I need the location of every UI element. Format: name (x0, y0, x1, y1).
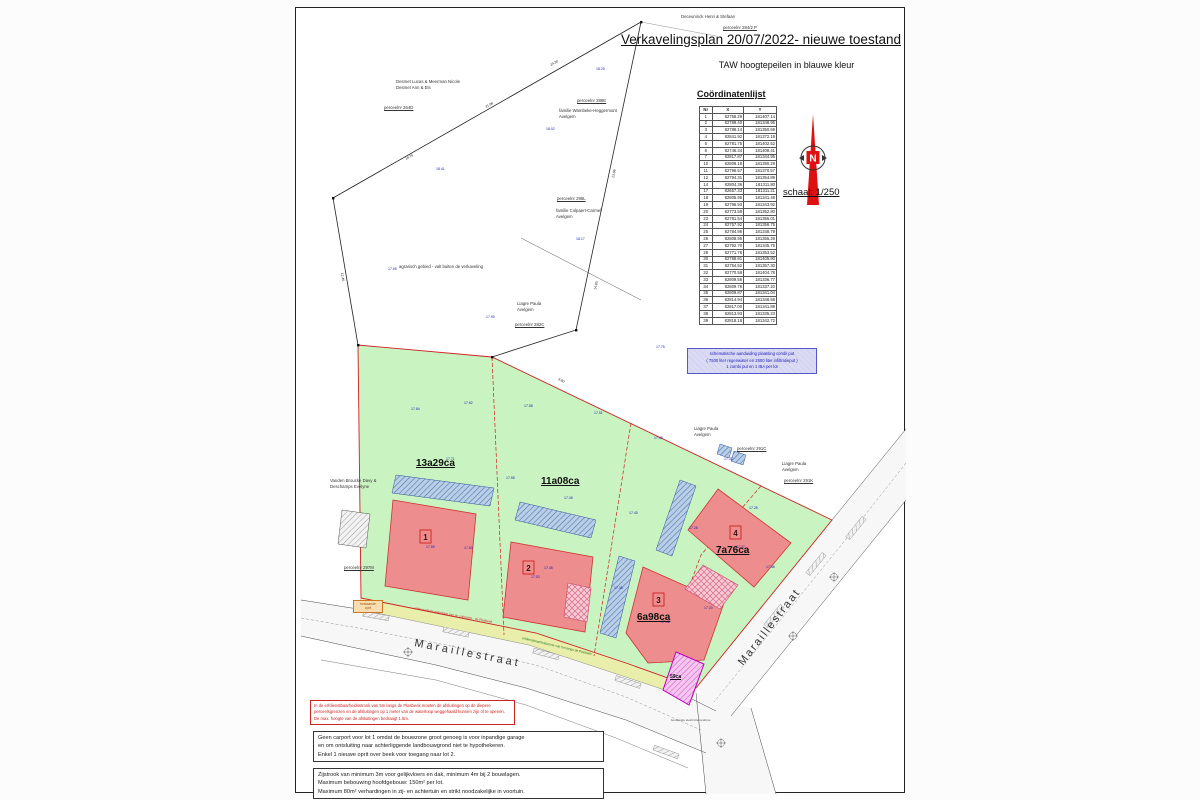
area-label-lot2: 11a08ca (541, 476, 579, 487)
coord-cell: 82781.75 (712, 140, 744, 147)
area-label-lot3: 6a98ca (637, 612, 670, 623)
coord-row: 1882805.95181341.48 (700, 195, 777, 202)
coord-row: 3682814.94181346.58 (700, 297, 777, 304)
coord-cell: 2 (700, 120, 713, 127)
coord-cell: 38 (700, 310, 713, 317)
existing-building (338, 510, 370, 548)
coord-cell: 82758.29 (712, 113, 744, 120)
owner-vandenbroucke-line2: Deschamps Evelyne (330, 484, 369, 489)
coord-row: 282789.40181348.95 (700, 120, 777, 127)
bestaande-oprit-box: bestaande oprit (353, 600, 383, 613)
scale-label: schaal: 1/250 (783, 187, 840, 198)
area-label-lot1: 13a29ca (416, 458, 455, 469)
coord-cell: 82784.96 (712, 229, 744, 236)
coord-cell: 181345.75 (744, 242, 777, 249)
taw-height: 17.90 (486, 315, 495, 319)
coord-row: 3882813.93181335.23 (700, 310, 777, 317)
lot-number-1: 1 (423, 533, 428, 542)
zijstrook-line-1: Zijstrook van minimum 3m voor gelijkvloe… (318, 771, 599, 779)
coord-cell: 181352.80 (744, 208, 777, 215)
dimension-label: 14.83 (593, 281, 599, 290)
coord-cell: 10 (700, 161, 713, 168)
coord-row: 3582809.87181341.04 (700, 290, 777, 297)
coord-cell: 181372.19 (744, 134, 777, 141)
coord-row: 2382781.54181355.01 (700, 215, 777, 222)
parcel-291k: perceelnr 291K (784, 478, 813, 484)
coord-cell: 6 (700, 147, 713, 154)
coord-row: 382788.14181350.59 (700, 127, 777, 134)
coord-cell: 181348.95 (744, 120, 777, 127)
owner-colpaert-line2: Avelgem (556, 214, 573, 219)
coord-row: 2682808.95181355.26 (700, 236, 777, 243)
coord-cell: 82770.58 (712, 270, 744, 277)
owner-wambeke-line1: familie Wambeke-Heggermont (559, 108, 617, 113)
taw-height: 17.62 (464, 401, 473, 405)
carport-line-1: Geen carport voor lot 1 omdat de bouwzon… (318, 734, 599, 742)
coord-cell: 82804.36 (712, 181, 744, 188)
coord-row: 3482809.76181337.20 (700, 283, 777, 290)
coord-row: 482841.92181372.19 (700, 134, 777, 141)
coord-row: 2582784.96181348.79 (700, 229, 777, 236)
coord-cell: 181355.26 (744, 236, 777, 243)
coord-cell: 25 (700, 229, 713, 236)
plasbeek-line-3: De max. hoogte van de afsluitingen bedra… (314, 716, 511, 722)
parcel-282c: perceelnr 282C (515, 322, 544, 328)
coordinates-table: NrXY182758.29181407.14282789.40181348.95… (699, 106, 777, 325)
owner-colpaert: familie Colpaert-Carmel Avelgem (556, 208, 601, 219)
coord-cell: 34 (700, 283, 713, 290)
coord-cell: 181341.88 (744, 304, 777, 311)
zijstrook-line-3: Maximum 80m² verhardingen in zij- en ach… (318, 788, 599, 796)
coord-cell: 181353.52 (744, 249, 777, 256)
carport-line-2: en om ontsluiting naar achterliggende la… (318, 742, 599, 750)
coord-cell: 82841.92 (712, 134, 744, 141)
coord-cell: 32 (700, 270, 713, 277)
coord-header-row: NrXY (700, 107, 777, 114)
coord-row: 3182754.52181357.30 (700, 263, 777, 270)
taw-height: 17.95 (388, 267, 397, 271)
coord-row: 1982796.93181343.92 (700, 202, 777, 209)
taw-height: 18.29 (596, 67, 605, 71)
parcel-264d: perceelnr 264D (384, 105, 413, 111)
coord-cell: 5 (700, 140, 713, 147)
coord-cell: 7 (700, 154, 713, 161)
lot-number-2: 2 (526, 564, 531, 573)
coord-col-header: Nr (700, 107, 713, 114)
taw-height: 17.40 (629, 511, 638, 515)
agrarisch-note: agrarisch gebied - valt buiten de verkav… (399, 264, 483, 270)
taw-height: 17.51 (594, 411, 603, 415)
coord-cell: 181341.48 (744, 195, 777, 202)
owner-vandenbroucke: Vanden Broucke Davy & Deschamps Evelyne (330, 478, 377, 489)
owner-liagre291c-line2: Avelgem (694, 432, 711, 437)
coord-cell: 181343.92 (744, 202, 777, 209)
owner-liagre291c-line1: Liagre Paula (694, 426, 718, 431)
plasbeek-note: In de erfdienstbaarheidsstrook van 5m la… (310, 700, 515, 725)
coord-cell: 82796.57 (712, 168, 744, 175)
coord-cell: 82789.40 (712, 120, 744, 127)
coord-cell: 26 (700, 236, 713, 243)
carport-line-3: Enkel 1 nieuwe oprit over beek voor toeg… (318, 751, 599, 759)
taw-height: 17.48 (654, 436, 663, 440)
coord-cell: 12 (700, 174, 713, 181)
coord-row: 2882771.76181353.52 (700, 249, 777, 256)
coord-row: 1182796.57181370.57 (700, 168, 777, 175)
area-label-lot4: 7a76ca (716, 545, 749, 556)
combi-line-3: 1 combi put en 1 IBA per lot (691, 364, 813, 371)
coord-cell: 82817.87 (712, 154, 744, 161)
bestaande-oprit-line2: oprit (355, 606, 381, 610)
parcel-295l: perceelnr 295L (557, 196, 586, 202)
coord-cell: 181390.29 (744, 161, 777, 168)
dimension-label: 18.75 (405, 153, 414, 161)
coord-cell: 181370.57 (744, 168, 777, 175)
dimension-label: 23.06 (611, 169, 617, 178)
coord-cell: 82808.18 (712, 161, 744, 168)
parcel-288e: perceelnr 288E (577, 98, 606, 104)
coord-cell: 181404.78 (744, 270, 777, 277)
coord-cell: 181344.95 (744, 154, 777, 161)
coord-cell: 181341.04 (744, 290, 777, 297)
taw-height: 17.58 (524, 404, 533, 408)
coord-cell: 4 (700, 134, 713, 141)
coord-cell: 181405.90 (744, 256, 777, 263)
coord-cell: 181402.52 (744, 140, 777, 147)
coord-cell: 82818.18 (712, 317, 744, 324)
coord-cell: 82809.56 (712, 276, 744, 283)
taw-height: 17.75 (656, 345, 665, 349)
owner-desmet: Desmet Lucas & Meerman Nicole Desmet Ann… (396, 79, 460, 90)
coord-cell: 30 (700, 256, 713, 263)
coord-cell: 33 (700, 276, 713, 283)
coord-cell: 82813.93 (712, 310, 744, 317)
taw-height: 17.36 (766, 565, 775, 569)
owner-vandenbroucke-line1: Vanden Broucke Davy & (330, 478, 377, 483)
owner-desmet-line2: Desmet Ann & Els (396, 85, 431, 90)
taw-height: 17.32 (724, 457, 733, 461)
coord-col-header: Y (744, 107, 777, 114)
coord-cell: 181407.14 (744, 113, 777, 120)
screenshot-root: { "header": { "title": "Verkavelingsplan… (0, 0, 1200, 800)
parcel-297m: perceelnr 297M (344, 565, 374, 571)
cabine-label: bestaande elektriciteitscabine (671, 718, 710, 722)
coord-cell: 39 (700, 317, 713, 324)
coord-cell: 181346.58 (744, 297, 777, 304)
owner-liagre-291c: Liagre Paula Avelgem (694, 426, 718, 437)
coord-cell: 82657.33 (712, 188, 744, 195)
coord-cell: 20 (700, 208, 713, 215)
coord-cell: 181336.77 (744, 276, 777, 283)
coord-row: 2482757.92181356.75 (700, 222, 777, 229)
coord-cell: 23 (700, 215, 713, 222)
coord-cell: 28 (700, 249, 713, 256)
taw-height: 17.60 (464, 546, 473, 550)
owner-deceuninck: Deceuninck Henri & Stefaan (681, 14, 735, 20)
coord-row: 3082788.91181405.90 (700, 256, 777, 263)
zijstrook-note: Zijstrook van minimum 3m voor gelijkvloe… (313, 768, 604, 799)
coord-cell: 3 (700, 127, 713, 134)
coord-cell: 82814.94 (712, 297, 744, 304)
coord-row: 1482804.36181311.80 (700, 181, 777, 188)
taw-height: 17.55 (506, 476, 515, 480)
coord-row: 1282794.31181354.89 (700, 174, 777, 181)
coord-row: 2082773.58181352.80 (700, 208, 777, 215)
page-title: Verkavelingsplan 20/07/2022- nieuwe toes… (618, 32, 904, 47)
coord-cell: 82805.95 (712, 195, 744, 202)
owner-desmet-line1: Desmet Lucas & Meerman Nicole (396, 79, 460, 84)
dimension-label: 31.98 (485, 101, 494, 109)
dimension-label: 12.45 (340, 273, 345, 282)
coord-row: 3282770.58181404.78 (700, 270, 777, 277)
coord-cell: 17 (700, 188, 713, 195)
zijstrook-line-2: Maximum bebouwing hoofdgebouw: 150m² per… (318, 779, 599, 787)
coord-cell: 181354.89 (744, 174, 777, 181)
coord-cell: 82809.87 (712, 290, 744, 297)
owner-colpaert-line1: familie Colpaert-Carmel (556, 208, 601, 213)
coord-cell: 82792.70 (712, 242, 744, 249)
coord-col-header: X (712, 107, 744, 114)
coordinates-table-wrap: NrXY182758.29181407.14282789.40181348.95… (699, 106, 777, 325)
coord-cell: 82771.76 (712, 249, 744, 256)
area-label-59ca: 59ca (670, 674, 681, 680)
owner-wambeke: familie Wambeke-Heggermont Avelgem (559, 108, 617, 119)
coord-cell: 82754.52 (712, 263, 744, 270)
parcel-284-2-p: perceelnr 284/2 P (723, 25, 757, 31)
coord-cell: 181337.20 (744, 283, 777, 290)
owner-liagre282-line2: Avelgem (517, 307, 534, 312)
taw-height: 17.20 (704, 606, 713, 610)
coord-cell: 181311.80 (744, 181, 777, 188)
coord-cell: 1 (700, 113, 713, 120)
coord-row: 2782792.70181345.75 (700, 242, 777, 249)
coord-cell: 37 (700, 304, 713, 311)
owner-liagre-282: Liagre Paula Avelgem (517, 301, 541, 312)
coord-row: 582781.75181402.52 (700, 140, 777, 147)
taw-height: 17.53 (531, 575, 540, 579)
coord-cell: 82817.00 (712, 304, 744, 311)
coord-cell: 181350.59 (744, 127, 777, 134)
owner-liagre282-line1: Liagre Paula (517, 301, 541, 306)
taw-height: 18.17 (576, 237, 585, 241)
taw-height: 18.02 (546, 127, 555, 131)
coord-cell: 181335.23 (744, 310, 777, 317)
coord-row: 3382809.56181336.77 (700, 276, 777, 283)
owner-liagre-291k: Liagre Paula Avelgem (782, 461, 806, 472)
coord-cell: 181342.72 (744, 317, 777, 324)
coord-cell: 82757.92 (712, 222, 744, 229)
coord-cell: 14 (700, 181, 713, 188)
coord-cell: 82773.58 (712, 208, 744, 215)
coord-row: 3982818.18181342.72 (700, 317, 777, 324)
taw-height: 17.28 (689, 526, 698, 530)
coord-cell: 11 (700, 168, 713, 175)
coord-cell: 19 (700, 202, 713, 209)
owner-liagre291k-line1: Liagre Paula (782, 461, 806, 466)
coord-cell: 31 (700, 263, 713, 270)
dimension-label: 24.30 (550, 59, 559, 67)
coord-cell: 181408.41 (744, 147, 777, 154)
owner-wambeke-line2: Avelgem (559, 114, 576, 119)
carport-note: Geen carport voor lot 1 omdat de bouwzon… (313, 731, 604, 762)
north-n-label: N (809, 154, 816, 165)
coord-cell: 82781.54 (712, 215, 744, 222)
coord-cell: 181355.01 (744, 215, 777, 222)
combi-put-note: schematische aanduiding plaatsing combi … (687, 348, 817, 374)
coord-cell: 27 (700, 242, 713, 249)
coord-cell: 36 (700, 297, 713, 304)
taw-height: 17.84 (411, 407, 420, 411)
taw-height: 17.45 (544, 566, 553, 570)
coord-cell: 181311.21 (744, 188, 777, 195)
plan-sheet: 1 2 3 4 Maraillestraat Maraillestraat on… (295, 7, 905, 793)
coord-cell: 82794.31 (712, 174, 744, 181)
owner-liagre291k-line2: Avelgem (782, 467, 799, 472)
coord-cell: 82796.93 (712, 202, 744, 209)
lot-number-3: 3 (656, 596, 661, 605)
coord-cell: 82746.34 (712, 147, 744, 154)
taw-height: 17.25 (749, 506, 758, 510)
coord-cell: 24 (700, 222, 713, 229)
coord-cell: 82808.95 (712, 236, 744, 243)
coord-cell: 82788.14 (712, 127, 744, 134)
parcel-291c: perceelnr 291C (737, 446, 766, 452)
coord-cell: 181356.75 (744, 222, 777, 229)
plan-drawing: 1 2 3 4 Maraillestraat Maraillestraat on… (296, 8, 906, 794)
coord-cell: 82788.91 (712, 256, 744, 263)
lot-number-4: 4 (733, 529, 738, 538)
dimension-label: 9.80 (558, 377, 566, 384)
coord-cell: 35 (700, 290, 713, 297)
coord-row: 1782657.33181311.21 (700, 188, 777, 195)
coord-cell: 18 (700, 195, 713, 202)
taw-height: 17.59 (426, 545, 435, 549)
plasbeek-line-2: perceelsgrenzen en de afsluitingen op 1 … (314, 709, 511, 715)
coord-row: 682746.34181408.41 (700, 147, 777, 154)
coord-row: 782817.87181344.95 (700, 154, 777, 161)
taw-height: 18.41 (436, 167, 445, 171)
coord-row: 182758.29181407.14 (700, 113, 777, 120)
coord-cell: 181357.30 (744, 263, 777, 270)
coordinates-heading: Coördinatenlijst (697, 89, 766, 99)
coord-row: 1082808.18181390.29 (700, 161, 777, 168)
coord-row: 3782817.00181341.88 (700, 304, 777, 311)
taw-height: 17.38 (614, 586, 623, 590)
taw-height: 17.49 (564, 496, 573, 500)
page-subtitle: TAW hoogtepeilen in blauwe kleur (684, 60, 889, 70)
coord-cell: 82809.76 (712, 283, 744, 290)
coord-cell: 181348.79 (744, 229, 777, 236)
